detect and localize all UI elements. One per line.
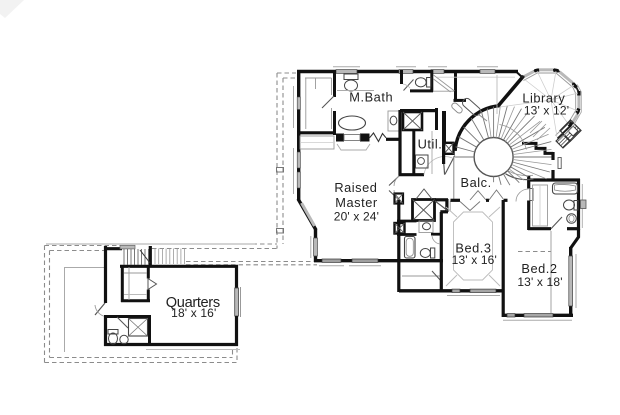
svg-text:20' x 24': 20' x 24' <box>334 210 379 224</box>
svg-text:13' x 18': 13' x 18' <box>517 275 562 289</box>
svg-text:Balc.: Balc. <box>460 175 491 190</box>
svg-text:Bed.2: Bed.2 <box>521 261 557 276</box>
svg-text:Raised: Raised <box>334 180 377 195</box>
svg-text:13' x 16': 13' x 16' <box>452 253 497 267</box>
svg-text:13' x 12': 13' x 12' <box>524 104 569 118</box>
svg-text:M.Bath: M.Bath <box>349 89 393 104</box>
svg-text:Util.: Util. <box>418 136 443 151</box>
svg-text:18' x 16': 18' x 16' <box>171 306 216 320</box>
svg-text:Master: Master <box>335 195 378 210</box>
